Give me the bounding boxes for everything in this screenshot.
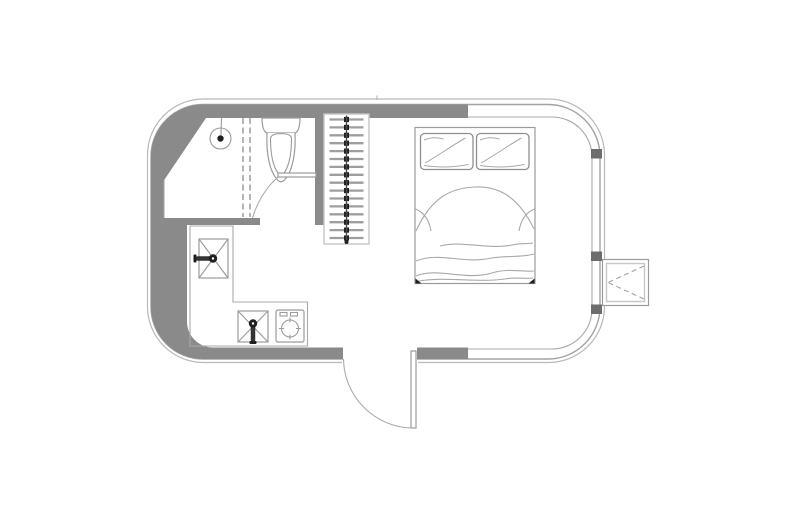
kitchen-sink-lever (250, 341, 257, 344)
bathroom-door-swing-arc (253, 177, 279, 218)
toilet-tank (262, 118, 300, 133)
cooktop (276, 310, 304, 342)
closet-partition-wall (315, 116, 324, 225)
utility-sink-lever (194, 255, 197, 263)
window-post (591, 252, 602, 262)
shower-head-nozzle (217, 135, 223, 141)
rail-end-cap (345, 240, 349, 244)
floor-plan-canvas (0, 0, 800, 526)
kitchen-sink-drain-hole (252, 322, 254, 324)
step-inner-frame (607, 264, 645, 302)
window-post (591, 305, 602, 315)
bathroom-partition-wall (164, 218, 261, 225)
utility-sink-drain-hole (212, 257, 214, 259)
kitchen (190, 226, 308, 346)
trailer-body-outline (148, 99, 605, 363)
bathroom-door-leaf (278, 173, 316, 177)
window-post (591, 149, 602, 159)
entry-door-swing-arc (344, 359, 412, 428)
utility-sink (194, 239, 229, 278)
door-side-wall (417, 348, 468, 360)
entry-step-platform (603, 260, 649, 306)
entry-door (344, 351, 417, 428)
shower-head-stem (221, 118, 222, 135)
closet (324, 114, 369, 244)
entry-door-leaf (411, 351, 416, 428)
toilet-symbol (262, 118, 300, 182)
bathroom (210, 118, 316, 218)
floor-plan (0, 0, 800, 526)
kitchen-sink (238, 311, 268, 344)
double-bed (415, 128, 535, 284)
